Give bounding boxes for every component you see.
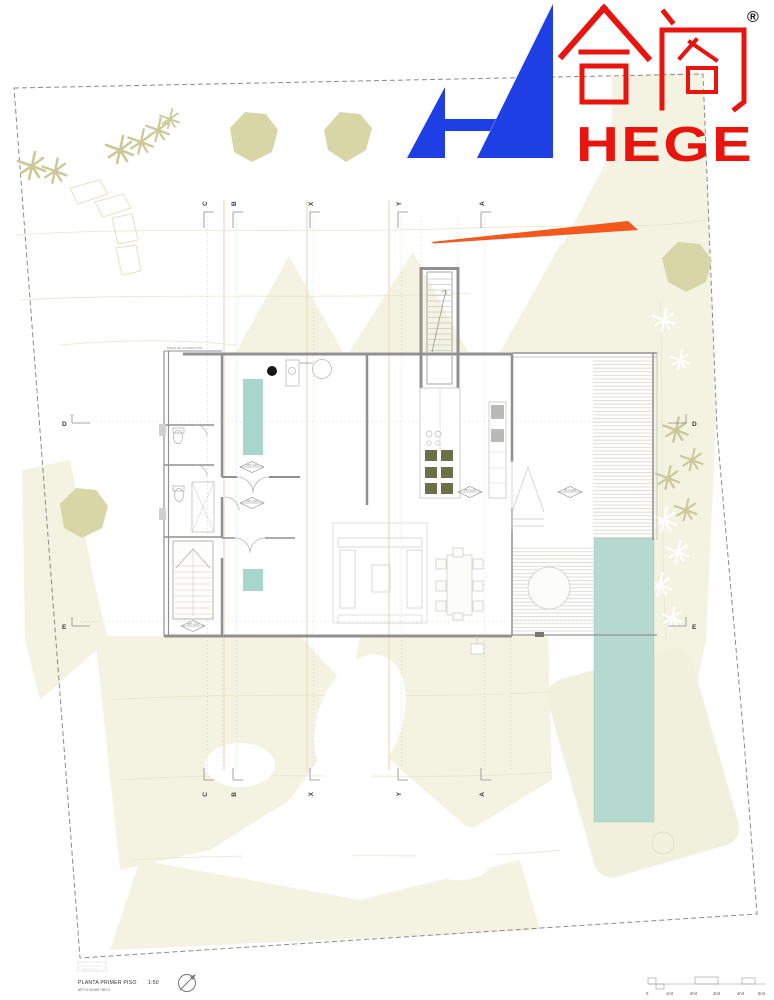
- interior-stair: [512, 460, 544, 530]
- revision-stamp: [78, 962, 106, 971]
- grid-col-label: A: [479, 792, 486, 797]
- logo-wordmark: HEGE: [576, 118, 754, 172]
- scale-label: 0: [646, 991, 649, 996]
- logo: 合阁 ® HEGE: [407, 4, 759, 172]
- level-tag-text: NPT +0,10: [464, 489, 476, 492]
- grid-row-label: E: [692, 624, 697, 631]
- kitchen: [420, 388, 506, 498]
- levels-note: NPT+0,00;NNT+991,5: [78, 988, 110, 992]
- scale-label: 4mt: [737, 991, 745, 996]
- level-tag-text: NPT +0,10: [246, 500, 258, 503]
- threshold-block: [535, 632, 544, 637]
- rug-lower: [243, 569, 263, 591]
- deck-circle: [528, 567, 570, 609]
- grid-col-label: B: [231, 201, 238, 206]
- scale-bar: 0 1mt 2mt 3mt 4mt 5mt: [646, 977, 766, 996]
- registered-mark: ®: [747, 9, 759, 26]
- grid-row-label: D: [692, 421, 697, 428]
- bathrooms: [173, 428, 214, 532]
- wood-deck-upper: [593, 360, 654, 538]
- drawing-scale: 1:50: [148, 980, 159, 986]
- room-label: BODEGA: [300, 361, 313, 365]
- grid-col-label: Y: [396, 791, 403, 796]
- living-room: [333, 523, 427, 623]
- grid-col-label: C: [202, 792, 209, 797]
- wall-note: MURO DE CONTENCIÓN: [167, 345, 202, 350]
- grid-col-label: C: [202, 201, 209, 206]
- swimming-pool: [594, 538, 654, 822]
- rug-upper: [243, 379, 263, 455]
- scale-label: 5mt: [758, 991, 766, 996]
- grid-row-label: D: [62, 421, 67, 428]
- level-tag-text: NPT +0,10: [246, 464, 258, 467]
- logo-mountain-mark: [407, 4, 553, 158]
- stair-tower: [421, 267, 458, 390]
- grid-col-label: Y: [396, 201, 403, 206]
- grid-col-label: X: [308, 201, 315, 206]
- grid-col-label: B: [231, 792, 238, 797]
- site-plan-svg: NPT +0,10 NPT +0,10 NPT +0,10 NPT +0,10 …: [0, 0, 774, 1000]
- drawing-sheet: NPT +0,10 NPT +0,10 NPT +0,10 NPT +0,10 …: [0, 0, 774, 1000]
- column-dot: [267, 366, 277, 376]
- grid-col-label: A: [479, 201, 486, 206]
- scale-label: 3mt: [713, 991, 721, 996]
- title-block: PLANTA PRIMER PISO 1:50 NPT+0,00;NNT+991…: [78, 962, 196, 992]
- grid-row-label: E: [62, 624, 67, 631]
- level-tag-text: NPT +0,10: [564, 489, 576, 492]
- dining-area: [436, 548, 483, 620]
- scale-label: 2mt: [690, 991, 698, 996]
- drawing-title: PLANTA PRIMER PISO: [78, 980, 137, 986]
- grid-col-label: X: [308, 791, 315, 796]
- level-tag-text: NPT +0,10: [187, 623, 199, 626]
- north-arrow-icon: [179, 974, 197, 992]
- scale-label: 1mt: [666, 991, 674, 996]
- ramp: [173, 541, 213, 619]
